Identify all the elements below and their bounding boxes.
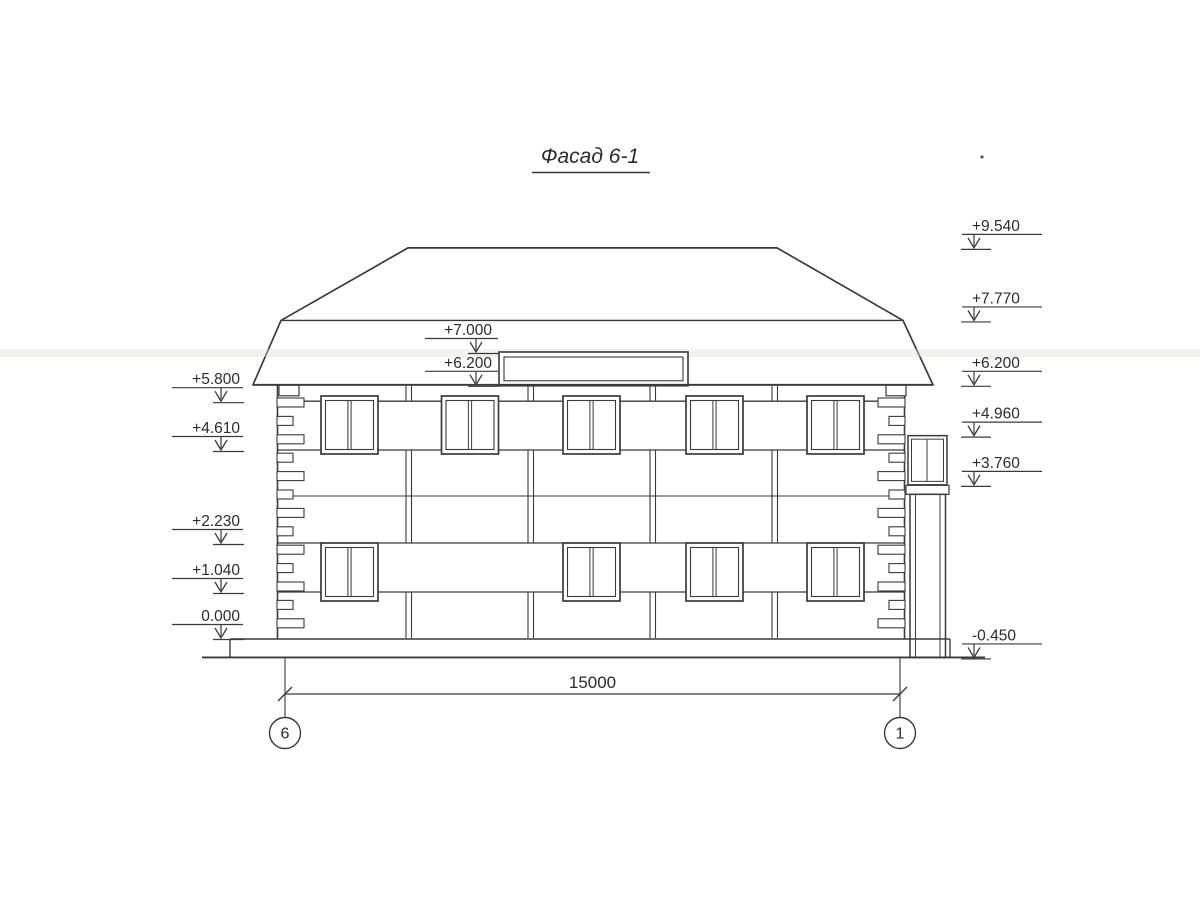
drawing-title: Фасад 6-1 — [541, 145, 639, 168]
quoin-brick-right — [878, 582, 905, 591]
annex-sill — [906, 485, 949, 494]
quoin-brick-right — [878, 398, 905, 407]
attic-vent-strip-inner — [504, 357, 683, 381]
facade-elevation-drawing: +5.800+4.610+2.230+1.0400.000+7.000+6.20… — [0, 0, 1200, 900]
quoin-brick-right — [878, 619, 905, 628]
quoin-brick-left — [277, 398, 304, 407]
upper-window-inner-frame — [568, 401, 616, 450]
elevation-value: +4.610 — [192, 420, 240, 437]
quoin-brick-left — [277, 472, 304, 481]
elevation-value: +9.540 — [972, 218, 1020, 235]
elevation-value: -0.450 — [972, 627, 1016, 644]
quoin-brick-left — [277, 416, 293, 425]
dimension-label: 15000 — [569, 673, 616, 692]
elevation-value: +6.200 — [972, 355, 1020, 372]
quoin-brick-right — [889, 600, 905, 609]
corner-post-right — [886, 385, 906, 396]
elevation-value: +3.760 — [972, 455, 1020, 472]
lower-window-inner-frame — [326, 548, 374, 597]
lower-window-inner-frame — [691, 548, 739, 597]
upper-window-inner-frame — [691, 401, 739, 450]
quoin-brick-left — [277, 435, 304, 444]
upper-window-inner-frame — [446, 401, 494, 450]
quoin-brick-right — [889, 416, 905, 425]
upper-window-inner-frame — [326, 401, 374, 450]
quoin-brick-right — [889, 527, 905, 536]
quoin-brick-right — [878, 435, 905, 444]
quoin-brick-right — [878, 508, 905, 517]
quoin-brick-left — [277, 564, 293, 573]
quoin-brick-left — [277, 508, 304, 517]
lower-window-inner-frame — [812, 548, 860, 597]
upper-window-inner-frame — [812, 401, 860, 450]
quoin-brick-right — [889, 453, 905, 462]
quoin-brick-left — [277, 582, 304, 591]
quoin-brick-left — [277, 453, 293, 462]
quoin-brick-left — [277, 600, 293, 609]
drawing-sheet: +5.800+4.610+2.230+1.0400.000+7.000+6.20… — [0, 0, 1200, 900]
scan-dot — [980, 155, 983, 158]
corner-post-left — [279, 385, 299, 396]
lower-window-inner-frame — [568, 548, 616, 597]
elevation-value: +7.770 — [972, 290, 1020, 307]
elevation-value: 0.000 — [201, 608, 240, 625]
quoin-brick-left — [277, 545, 304, 554]
axis-bubble-label: 1 — [896, 726, 905, 743]
elevation-value: +5.800 — [192, 371, 240, 388]
quoin-brick-right — [878, 545, 905, 554]
quoin-brick-right — [889, 490, 905, 499]
quoin-brick-right — [889, 564, 905, 573]
elevation-value: +6.200 — [444, 355, 492, 372]
elevation-value: +2.230 — [192, 513, 240, 530]
quoin-brick-left — [277, 619, 304, 628]
elevation-value: +1.040 — [192, 562, 240, 579]
elevation-value: +7.000 — [444, 322, 492, 339]
axis-bubble-label: 6 — [281, 726, 290, 743]
quoin-brick-left — [277, 490, 293, 499]
quoin-brick-left — [277, 527, 293, 536]
quoin-brick-right — [878, 472, 905, 481]
elevation-value: +4.960 — [972, 406, 1020, 423]
